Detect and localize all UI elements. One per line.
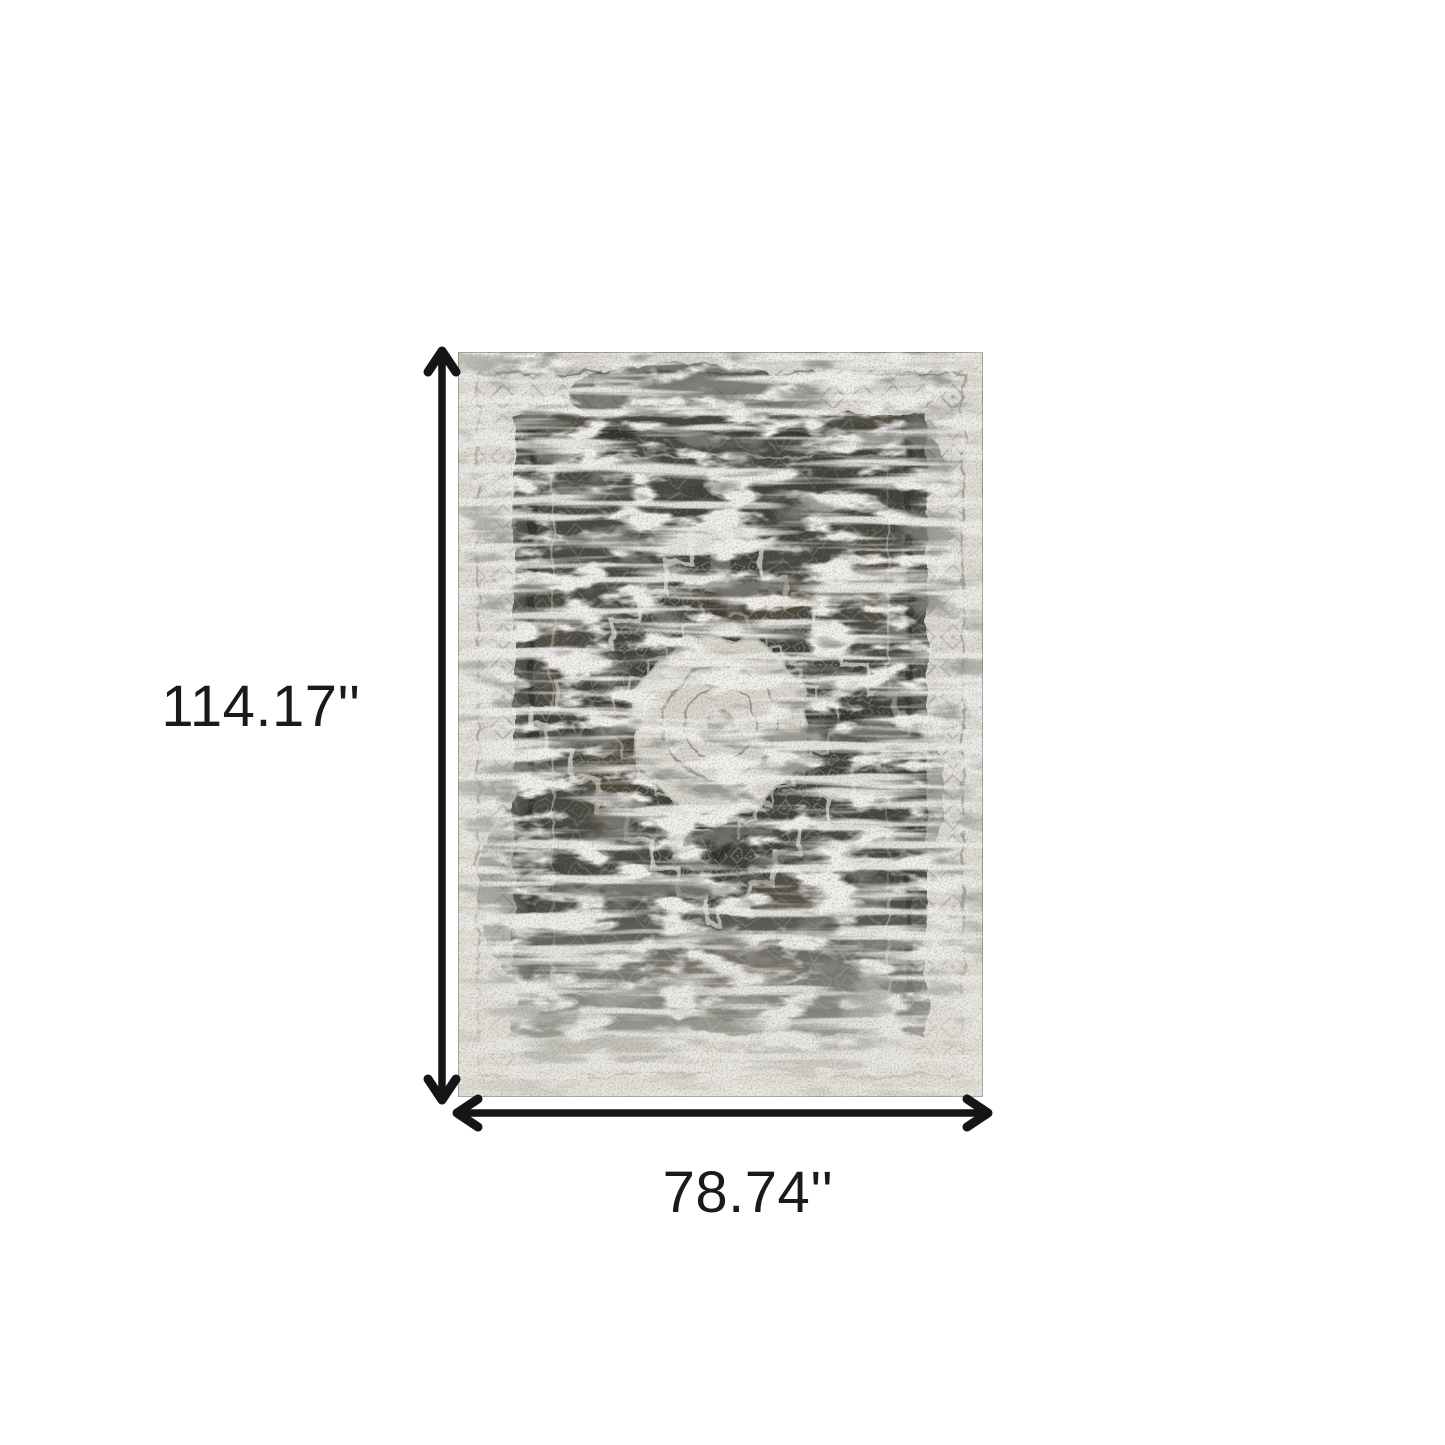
width-arrow bbox=[457, 1099, 988, 1127]
width-dimension-label: 78.74'' bbox=[616, 1158, 880, 1228]
height-dimension-label: 114.17'' bbox=[126, 672, 396, 742]
height-arrow bbox=[428, 351, 456, 1100]
arrowhead-up-icon bbox=[428, 351, 456, 372]
arrowhead-right-icon bbox=[967, 1099, 988, 1127]
rug-image bbox=[458, 352, 983, 1097]
rug-art bbox=[458, 352, 983, 1097]
arrowhead-left-icon bbox=[457, 1099, 478, 1127]
product-dimension-diagram: 114.17'' 78.74'' bbox=[0, 0, 1445, 1445]
arrowhead-down-icon bbox=[428, 1079, 456, 1100]
